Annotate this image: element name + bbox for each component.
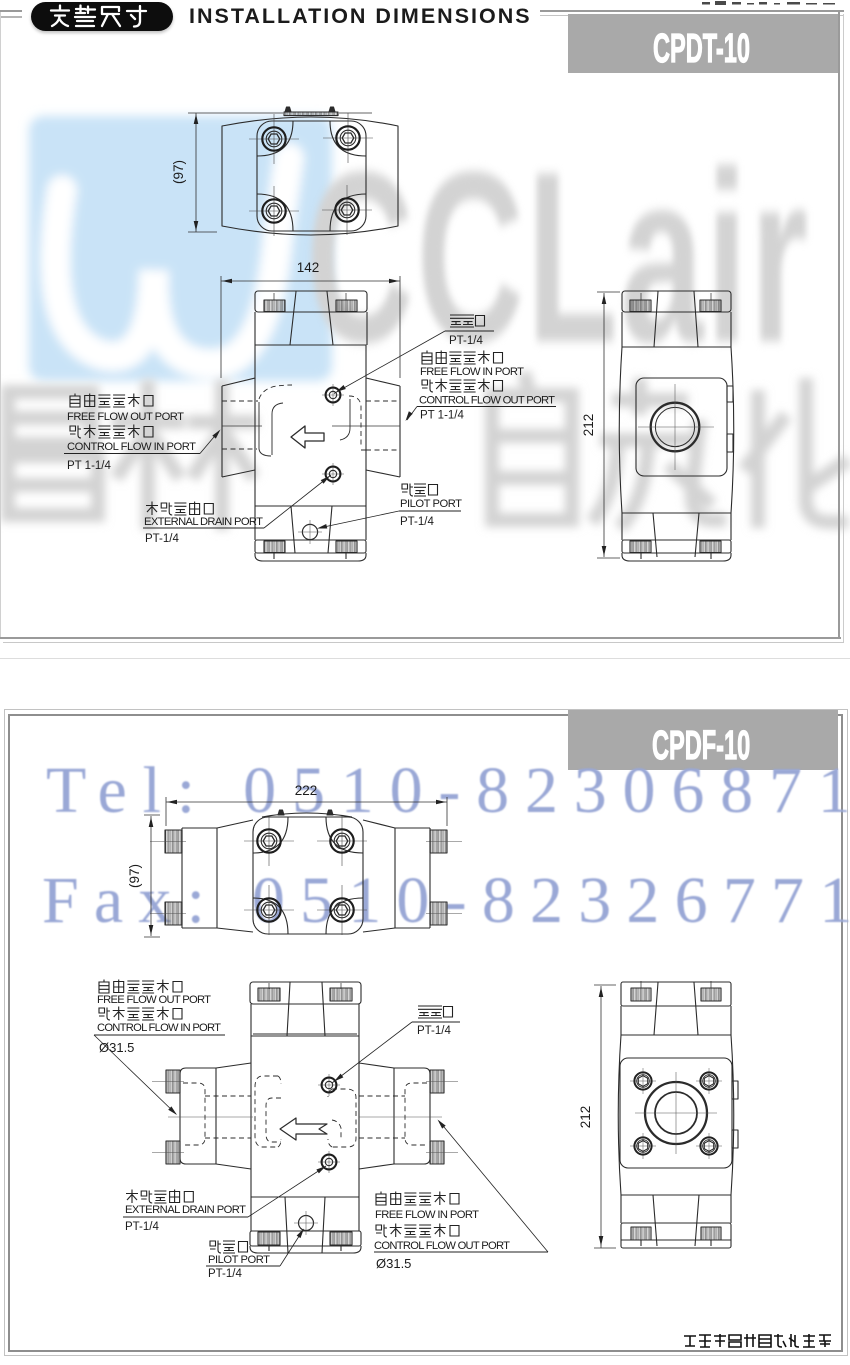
svg-text:(97): (97) <box>171 160 186 184</box>
svg-text:CONTROL FLOW OUT PORT: CONTROL FLOW OUT PORT <box>374 1240 510 1252</box>
svg-text:222: 222 <box>295 783 318 798</box>
svg-text:FREE FLOW OUT PORT: FREE FLOW OUT PORT <box>97 994 211 1006</box>
svg-text:PILOT PORT: PILOT PORT <box>208 1254 270 1266</box>
svg-text:CONTROL FLOW OUT PORT: CONTROL FLOW OUT PORT <box>419 395 555 407</box>
svg-text:EXTERNAL DRAIN PORT: EXTERNAL DRAIN PORT <box>144 516 263 528</box>
svg-text:CONTROL FLOW IN PORT: CONTROL FLOW IN PORT <box>67 441 196 453</box>
svg-text:FREE FLOW IN PORT: FREE FLOW IN PORT <box>420 366 524 378</box>
svg-text:PT-1/4: PT-1/4 <box>417 1025 451 1037</box>
svg-text:PT-1/4: PT-1/4 <box>208 1268 242 1280</box>
svg-text:PT-1/4: PT-1/4 <box>145 533 179 545</box>
svg-text:PT-1/4: PT-1/4 <box>400 516 434 528</box>
svg-text:Ø31.5: Ø31.5 <box>99 1040 134 1055</box>
svg-text:212: 212 <box>578 1106 593 1129</box>
svg-text:(97): (97) <box>127 864 142 888</box>
svg-text:142: 142 <box>297 260 320 275</box>
svg-text:FREE FLOW IN PORT: FREE FLOW IN PORT <box>375 1209 479 1221</box>
svg-text:PILOT PORT: PILOT PORT <box>400 498 462 510</box>
svg-text:PT 1-1/4: PT 1-1/4 <box>67 460 111 472</box>
svg-text:PT-1/4: PT-1/4 <box>449 335 483 347</box>
svg-text:FREE FLOW OUT PORT: FREE FLOW OUT PORT <box>67 411 184 423</box>
svg-text:PT 1-1/4: PT 1-1/4 <box>420 410 464 422</box>
svg-text:212: 212 <box>581 414 596 437</box>
svg-text:CONTROL FLOW IN PORT: CONTROL FLOW IN PORT <box>97 1022 221 1034</box>
svg-text:PT-1/4: PT-1/4 <box>125 1221 159 1233</box>
svg-text:Ø31.5: Ø31.5 <box>376 1256 411 1271</box>
svg-text:EXTERNAL DRAIN PORT: EXTERNAL DRAIN PORT <box>125 1204 246 1216</box>
